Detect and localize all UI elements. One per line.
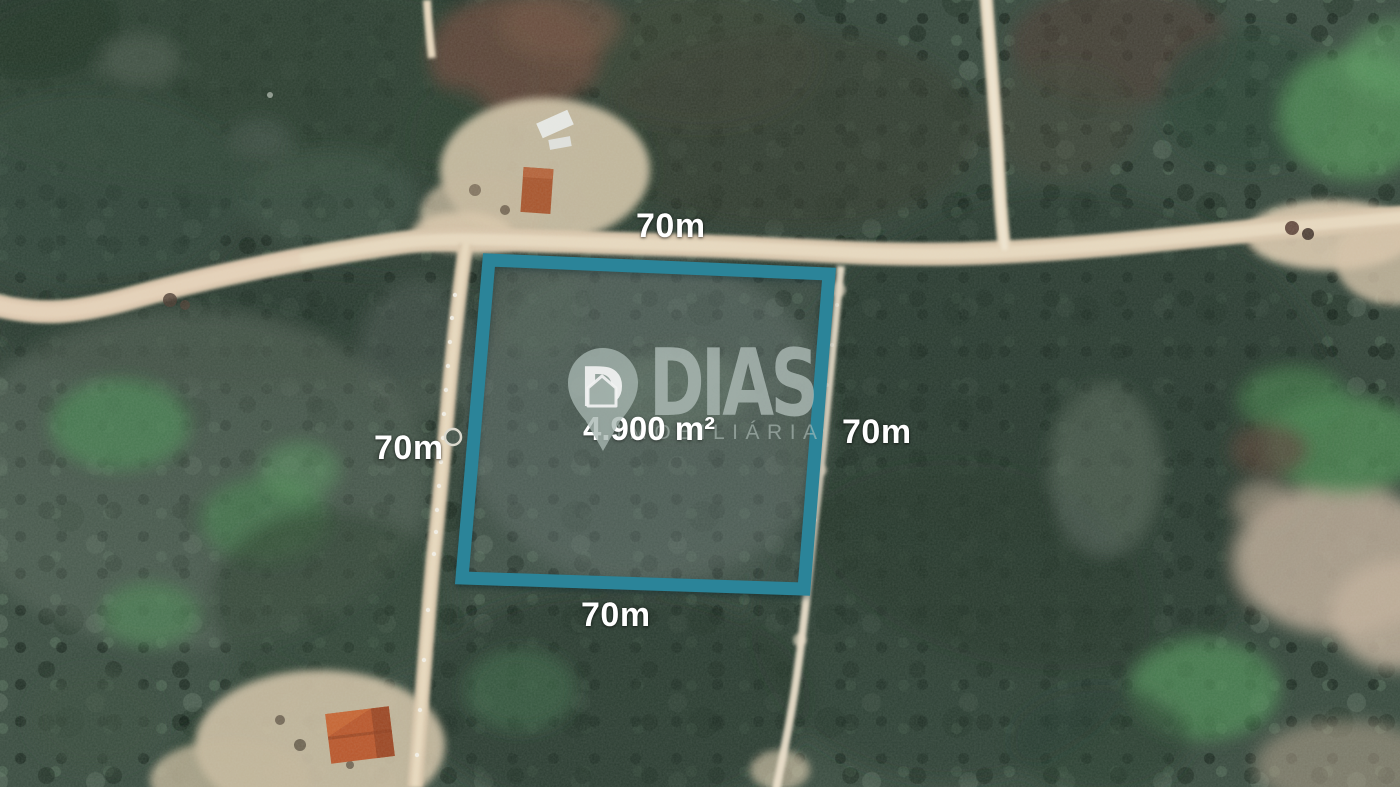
satellite-map-view: DIAS IMOBILIÁRIA 70m 70m 70m 70m 4.900 m… [0,0,1400,787]
dimension-label-left: 70m [374,431,444,465]
dimension-label-right: 70m [842,415,912,449]
dimension-label-top: 70m [636,209,706,243]
dimension-label-bottom: 70m [581,598,651,632]
map-pin-house-icon: D [566,346,640,454]
